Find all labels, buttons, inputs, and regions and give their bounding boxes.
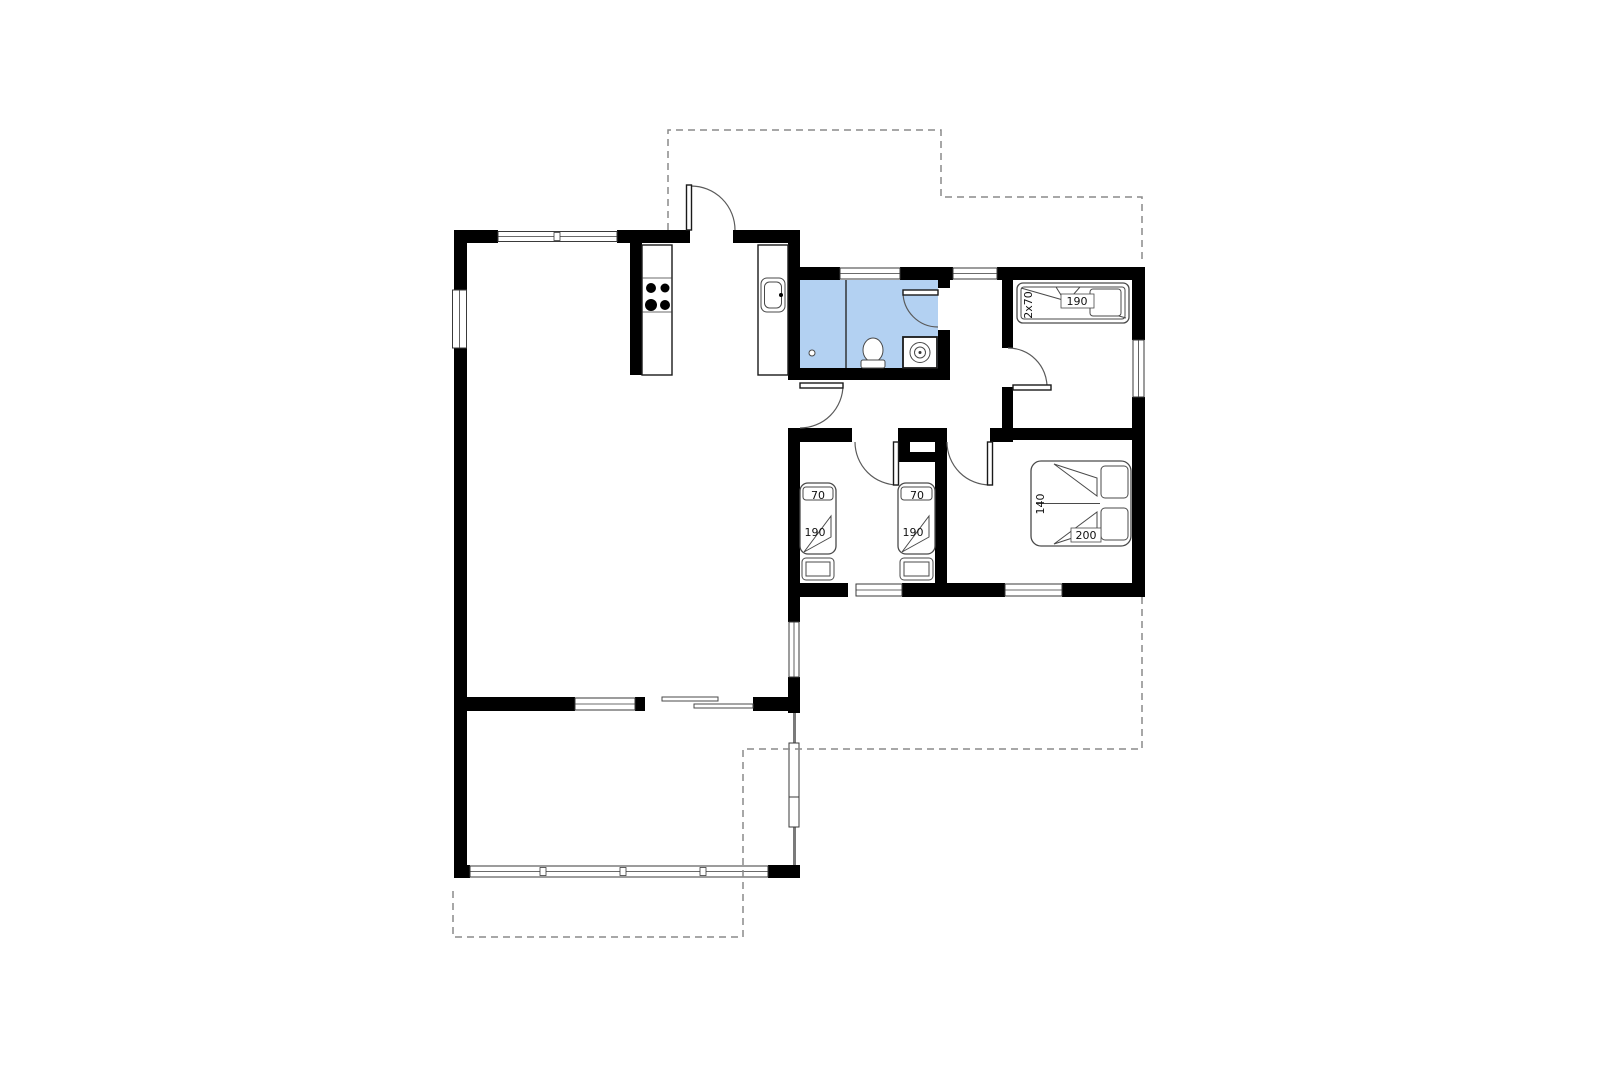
window-bunk-room-east bbox=[1133, 340, 1144, 397]
north-wing-wall bbox=[997, 267, 1145, 280]
left-wall-segment bbox=[454, 348, 467, 878]
entrance-door bbox=[687, 185, 736, 230]
right-wall-segment bbox=[1132, 267, 1145, 340]
bunk-bed-length-label: 190 bbox=[1067, 295, 1088, 308]
entrance-door-panel bbox=[687, 185, 692, 230]
bunk-room-left-wall bbox=[1002, 267, 1013, 348]
bathroom-bottom-wall bbox=[788, 368, 950, 380]
burner-icon bbox=[661, 284, 670, 293]
window-bathroom bbox=[840, 268, 900, 279]
bedroom-south-wall bbox=[902, 583, 1005, 597]
window-hall bbox=[953, 268, 997, 279]
floor-plan: 2x70 190 70 190 70 190 140 200 bbox=[0, 0, 1600, 1066]
stove-counter bbox=[642, 245, 672, 375]
window-sunroom-east-upper bbox=[789, 622, 799, 677]
sliding-door bbox=[662, 697, 753, 708]
door-panel bbox=[1013, 385, 1051, 390]
double-bed-length-label: 200 bbox=[1076, 529, 1097, 542]
pillow bbox=[1090, 289, 1121, 316]
bedroom-south-wall bbox=[1062, 583, 1145, 597]
window-double-room-south bbox=[1005, 584, 1062, 596]
north-wing-wall bbox=[800, 267, 840, 280]
window-sunroom-east-lower bbox=[789, 743, 799, 827]
bunk-room-left-wall bbox=[1002, 387, 1013, 442]
bottom-wall-corner bbox=[768, 865, 800, 878]
washing-machine-icon bbox=[903, 337, 937, 368]
wardrobe-niche-slot bbox=[910, 442, 935, 452]
door-panel bbox=[894, 442, 899, 485]
top-wall-segment bbox=[617, 230, 690, 243]
window-kids-room-south bbox=[856, 584, 902, 596]
left-wall-segment bbox=[454, 230, 467, 290]
hall-wall bbox=[800, 428, 852, 442]
window-left-living bbox=[453, 290, 467, 348]
living-to-hall-door bbox=[800, 383, 843, 428]
doors bbox=[662, 185, 1051, 708]
bathroom-right-wall bbox=[938, 267, 950, 288]
double-room-door bbox=[947, 442, 993, 485]
sunroom-divider-wall bbox=[467, 697, 575, 711]
terrace-outline-north bbox=[668, 130, 1142, 264]
single-bed-2-width-label: 70 bbox=[910, 489, 924, 502]
door-panel bbox=[903, 290, 938, 295]
double-bed-width-label: 140 bbox=[1034, 494, 1047, 515]
bedroom-south-wall bbox=[788, 583, 848, 597]
window-band-sunroom-south bbox=[470, 866, 768, 877]
kitchen bbox=[642, 245, 788, 375]
door-panel bbox=[800, 383, 843, 388]
right-wall-segment bbox=[1132, 397, 1145, 597]
window-top-living bbox=[498, 232, 617, 242]
kitchen-wall bbox=[630, 243, 642, 375]
single-bed-1-length-label: 190 bbox=[805, 526, 826, 539]
pillow bbox=[1101, 508, 1128, 540]
window-divider bbox=[575, 698, 635, 710]
double-room-top-wall bbox=[1013, 428, 1132, 440]
east-wall-upper bbox=[788, 230, 800, 380]
sunroom-divider-wall bbox=[635, 697, 645, 711]
bottom-wall-corner bbox=[454, 865, 470, 878]
door-panel bbox=[988, 442, 993, 485]
sunroom-east-wall bbox=[788, 677, 800, 713]
shower-drain-icon bbox=[809, 350, 815, 356]
burner-icon bbox=[645, 299, 657, 311]
bunk-room-door bbox=[1008, 348, 1051, 390]
floor-plan-page: 2x70 190 70 190 70 190 140 200 bbox=[0, 0, 1600, 1066]
bunk-bed-width-label: 2x70 bbox=[1022, 291, 1035, 319]
sunroom-east-wall bbox=[788, 597, 800, 622]
sunroom-divider-wall bbox=[753, 697, 788, 711]
single-bed-2-length-label: 190 bbox=[903, 526, 924, 539]
pillow bbox=[1101, 466, 1128, 498]
single-bed-1-width-label: 70 bbox=[811, 489, 825, 502]
burner-icon bbox=[660, 300, 670, 310]
faucet-icon bbox=[779, 293, 783, 297]
kids-double-divider-wall bbox=[935, 442, 947, 583]
toilet-icon bbox=[861, 338, 885, 368]
kids-room-door bbox=[855, 442, 899, 485]
sink-counter bbox=[758, 245, 788, 375]
east-wall-mid bbox=[788, 428, 800, 597]
burner-icon bbox=[646, 283, 656, 293]
